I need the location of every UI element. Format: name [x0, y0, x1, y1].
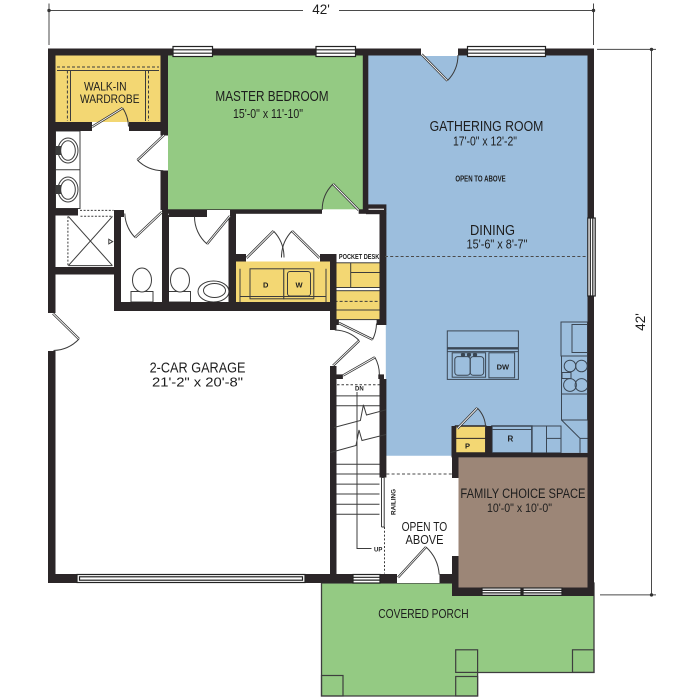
svg-text:WARDROBE: WARDROBE [80, 94, 140, 106]
svg-text:DW: DW [497, 363, 510, 372]
svg-text:OPEN TO ABOVE: OPEN TO ABOVE [455, 174, 506, 183]
svg-text:R: R [508, 435, 514, 444]
svg-text:2-CAR GARAGE: 2-CAR GARAGE [150, 360, 246, 377]
svg-text:COVERED PORCH: COVERED PORCH [378, 607, 468, 621]
svg-text:MASTER BEDROOM: MASTER BEDROOM [215, 88, 328, 105]
svg-text:ABOVE: ABOVE [406, 532, 444, 547]
svg-text:10'-0" x 10'-0": 10'-0" x 10'-0" [487, 501, 552, 515]
svg-text:GATHERING ROOM: GATHERING ROOM [430, 118, 544, 135]
svg-text:42': 42' [312, 2, 330, 17]
svg-text:UP: UP [374, 548, 382, 554]
svg-text:WALK-IN: WALK-IN [84, 82, 127, 94]
svg-text:DN: DN [355, 387, 364, 393]
svg-text:FAMILY CHOICE SPACE: FAMILY CHOICE SPACE [460, 486, 585, 501]
svg-text:21'-2" x 20'-8": 21'-2" x 20'-8" [152, 376, 243, 390]
svg-text:17'-0" x 12'-2": 17'-0" x 12'-2" [453, 135, 517, 149]
svg-text:W: W [296, 281, 304, 290]
svg-text:15'-0" x 11'-10": 15'-0" x 11'-10" [233, 107, 303, 121]
svg-text:P: P [465, 442, 470, 451]
svg-text:POCKET DESK: POCKET DESK [339, 252, 380, 261]
svg-text:DINING: DINING [470, 222, 515, 239]
svg-text:D: D [263, 281, 269, 290]
svg-text:RAILING: RAILING [391, 489, 398, 515]
svg-text:42': 42' [633, 313, 648, 331]
svg-text:15'-6" x 8'-7": 15'-6" x 8'-7" [467, 238, 528, 252]
